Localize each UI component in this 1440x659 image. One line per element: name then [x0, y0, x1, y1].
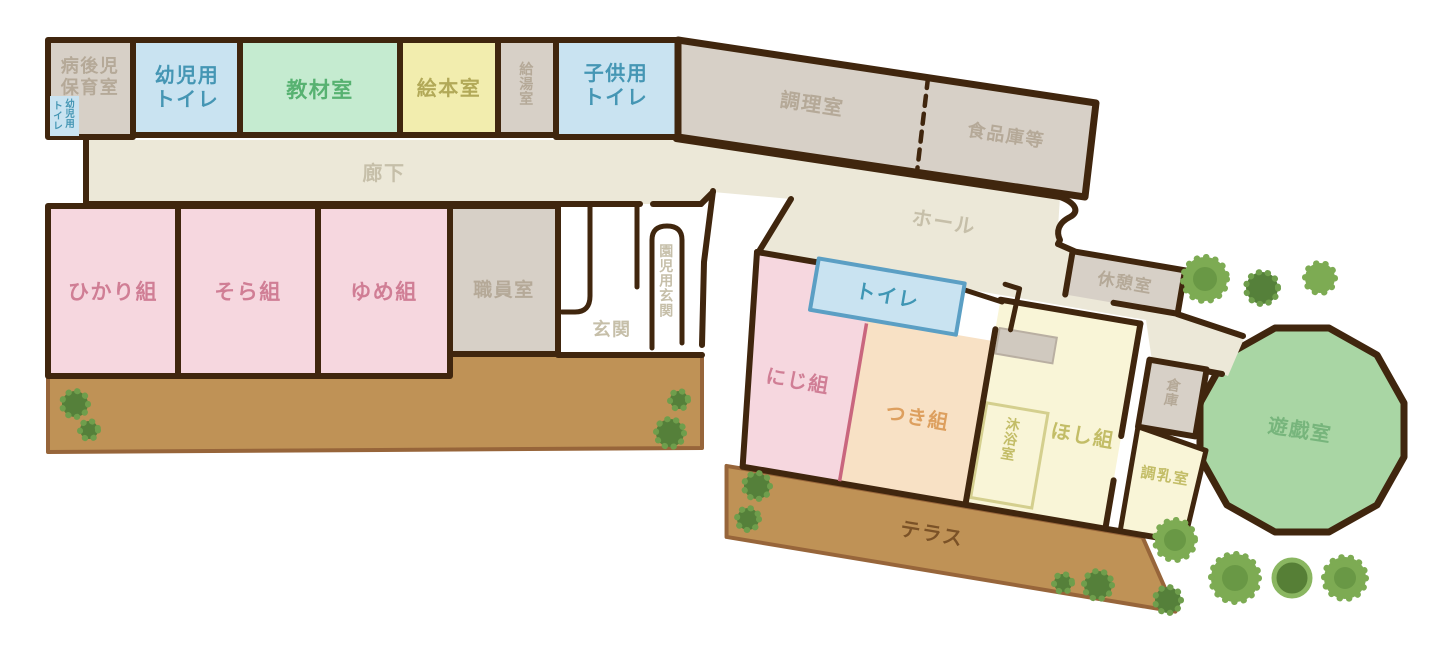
- tree: [1155, 520, 1195, 560]
- label-enji-genkan: 園児用玄関: [658, 244, 675, 319]
- tree: [80, 421, 98, 439]
- label-ehon: 絵本室: [417, 76, 482, 100]
- label-youji-toilet-small-2: トイレ: [53, 101, 63, 132]
- label-genkan: 玄関: [593, 319, 632, 341]
- label-sora: そら組: [214, 280, 282, 304]
- tree: [670, 391, 688, 409]
- tree: [737, 508, 759, 530]
- label-kyuto: 給湯室: [519, 61, 535, 108]
- tree: [1084, 571, 1112, 599]
- tree: [1054, 574, 1072, 592]
- nursery-floorplan: にじ組 つき組 トイレ 休憩室 ほし組 沐浴室 倉庫 調乳室 テラス 病後児保育…: [0, 0, 1440, 659]
- label-kyozai: 教材室: [286, 78, 354, 102]
- wall-hall-door-notch: [1058, 197, 1075, 244]
- tree: [1155, 587, 1181, 613]
- label-byogoji: 病後児保育室: [60, 55, 120, 99]
- tree: [1324, 557, 1366, 599]
- tree: [1211, 554, 1259, 602]
- floorplan-canvas: にじ組 つき組 トイレ 休憩室 ほし組 沐浴室 倉庫 調乳室 テラス 病後児保育…: [0, 0, 1440, 659]
- label-shokuin: 職員室: [473, 278, 535, 301]
- tree: [744, 473, 770, 499]
- label-kodomo-toilet: 子供用トイレ: [584, 61, 649, 109]
- wall-genkan-j: [562, 206, 590, 312]
- label-hikari: ひかり組: [68, 280, 158, 304]
- label-youji-toilet: 幼児用トイレ: [155, 63, 220, 111]
- tree: [656, 419, 684, 447]
- wall-genkan-outer: [702, 191, 713, 345]
- label-yume: ゆめ組: [350, 280, 418, 304]
- label-roka: 廊下: [363, 161, 406, 185]
- tree: [62, 391, 88, 417]
- tree: [1183, 257, 1227, 301]
- tree: [1305, 263, 1335, 293]
- label-youji-toilet-small-1: 幼児用: [64, 98, 75, 130]
- tree: [1274, 560, 1310, 596]
- tree: [1246, 272, 1278, 304]
